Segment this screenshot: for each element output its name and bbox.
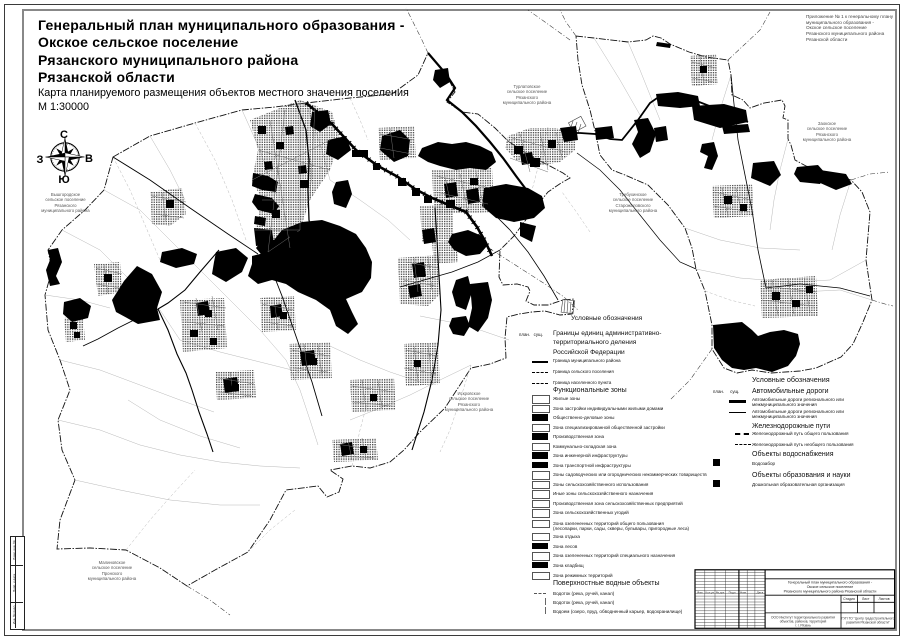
- svg-text:Окское сельское поселение: Окское сельское поселение: [807, 585, 854, 589]
- svg-text:Листов: Листов: [878, 597, 889, 601]
- svg-text:Кол.уч: Кол.уч: [705, 591, 714, 595]
- svg-text:развития Рязанской области": развития Рязанской области": [846, 621, 890, 625]
- svg-text:Лист: Лист: [862, 597, 870, 601]
- svg-text:Дата: Дата: [757, 591, 764, 595]
- svg-text:Рязанского муниципального райо: Рязанского муниципального района Рязанск…: [784, 590, 877, 594]
- svg-text:Изм: Изм: [697, 591, 702, 595]
- svg-text:Генеральный план муниципальног: Генеральный план муниципального образова…: [788, 581, 873, 585]
- svg-text:Нам: Нам: [740, 591, 746, 595]
- svg-text:№ док: № док: [716, 591, 725, 595]
- svg-text:Стадия: Стадия: [843, 597, 855, 601]
- svg-text:г. г. Рязань: г. г. Рязань: [795, 624, 811, 628]
- svg-text:Подп: Подп: [729, 591, 736, 595]
